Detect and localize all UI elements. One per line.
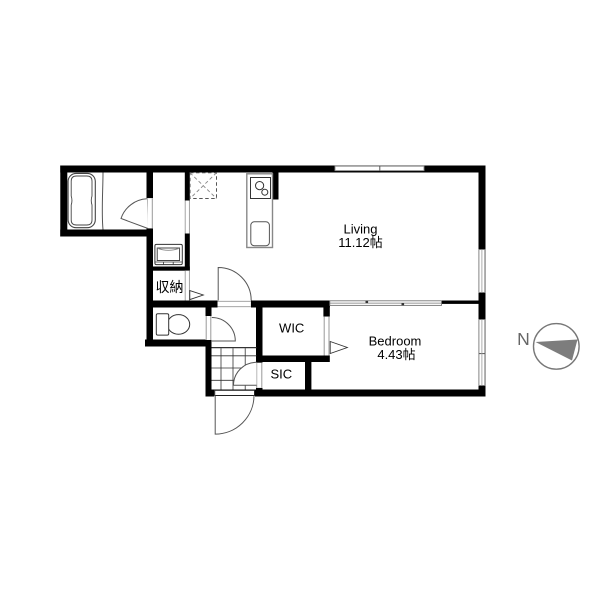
svg-text:WIC: WIC xyxy=(279,321,304,336)
svg-text:SIC: SIC xyxy=(270,367,292,382)
svg-text:収納: 収納 xyxy=(156,279,184,295)
svg-text:4.43帖: 4.43帖 xyxy=(377,347,415,362)
svg-text:11.12帖: 11.12帖 xyxy=(338,235,383,250)
svg-text:N: N xyxy=(517,329,530,349)
